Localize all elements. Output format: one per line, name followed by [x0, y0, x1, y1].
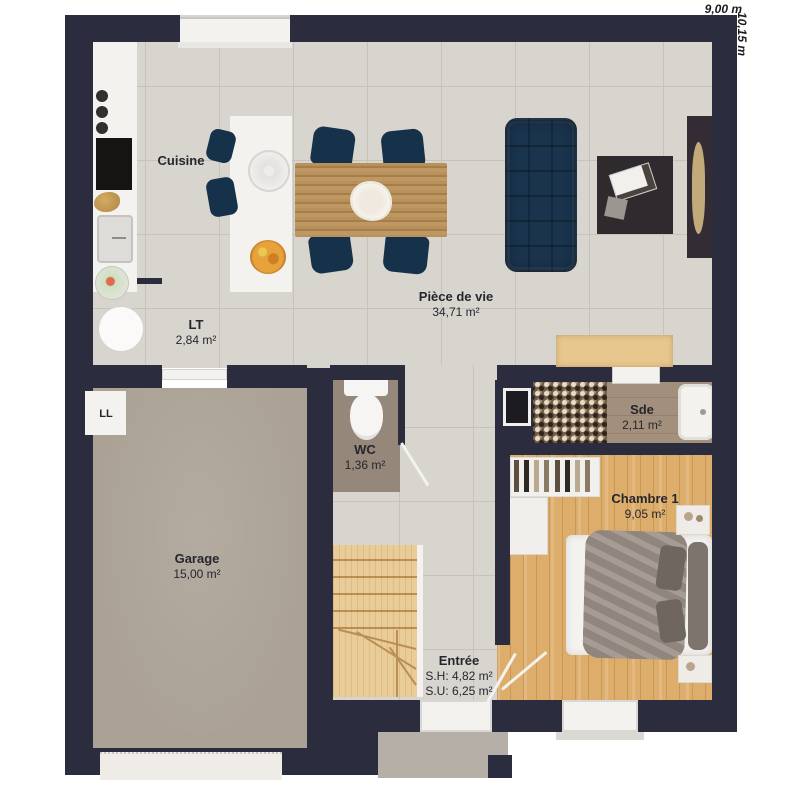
- room-name: Chambre 1: [611, 491, 678, 507]
- table-centerpiece-icon: [352, 183, 390, 219]
- room-label-chambre-1: Chambre 1 9,05 m²: [611, 491, 678, 522]
- porch-post: [488, 755, 512, 778]
- dining-chair: [382, 233, 430, 275]
- room-label-sde: Sde 2,11 m²: [622, 402, 662, 433]
- salad-bowl-icon: [95, 266, 129, 300]
- stair-edge: [417, 545, 423, 697]
- room-label-entree: Entrée S.H: 4,82 m² S.U: 6,25 m²: [425, 653, 492, 700]
- faucet-icon: [112, 237, 126, 239]
- room-area: 34,71 m²: [419, 305, 493, 321]
- wall-bottom-right: [333, 700, 737, 732]
- room-name: Pièce de vie: [419, 289, 493, 305]
- stair-newel-line: [396, 630, 398, 697]
- stove-knob-icon: [96, 106, 108, 118]
- room-area-su: S.U: 6,25 m²: [425, 684, 492, 700]
- garage-lt-door-leaf: [162, 369, 227, 380]
- sink-drain-icon: [700, 409, 706, 415]
- room-name: Cuisine: [158, 153, 205, 169]
- chambre-window: [562, 700, 638, 732]
- nightstand-decor-icon: [684, 512, 693, 521]
- nightstand-decor-icon: [696, 515, 703, 522]
- wall-wc-top: [330, 365, 405, 380]
- dimension-height: 10,15 m: [735, 12, 749, 66]
- room-name: WC: [345, 442, 386, 458]
- wall-garage-top-left: [93, 365, 162, 388]
- garage-door: [100, 752, 282, 780]
- room-label-wc: WC 1,36 m²: [345, 442, 386, 473]
- coaster-icon: [604, 196, 628, 220]
- nightstand: [676, 505, 710, 535]
- dimension-width: 9,00 m: [650, 2, 742, 16]
- kitchen-sink: [97, 215, 133, 263]
- wardrobe-clothes-icon: [514, 460, 596, 492]
- room-area: 1,36 m²: [345, 458, 386, 474]
- wall-garage-right: [307, 368, 333, 775]
- room-name: Entrée: [425, 653, 492, 669]
- room-area: 2,84 m²: [176, 333, 217, 349]
- sde-door: [612, 366, 660, 384]
- wall-sde-top-right: [660, 365, 712, 382]
- stove-knob-icon: [96, 122, 108, 134]
- dining-chair: [308, 231, 355, 274]
- kitchen-window-sill: [178, 42, 292, 48]
- room-name: LT: [176, 317, 217, 333]
- cooktop: [96, 138, 132, 190]
- washing-machine-text: LL: [99, 408, 112, 420]
- tv-icon: [692, 142, 705, 234]
- room-label-piece-de-vie: Pièce de vie 34,71 m²: [419, 289, 493, 320]
- wall-garage-top-right: [227, 365, 307, 388]
- room-name: Garage: [173, 551, 220, 567]
- wall-wc-right: [398, 368, 405, 445]
- wall-sde-chambre: [510, 443, 712, 455]
- wall-top: [65, 15, 737, 42]
- sofa: [505, 118, 577, 272]
- nightstand: [678, 655, 712, 683]
- sideboard: [556, 335, 673, 367]
- fruit-bowl-icon: [250, 240, 286, 274]
- chambre-window-sill: [556, 732, 644, 740]
- nightstand-decor-icon: [686, 662, 695, 671]
- room-area: 9,05 m²: [611, 507, 678, 523]
- hall-cabinet: [503, 388, 531, 426]
- room-label-garage: Garage 15,00 m²: [173, 551, 220, 582]
- wall-porch-corner: [333, 732, 378, 775]
- island-sink-icon: [248, 150, 290, 192]
- water-heater-icon: [99, 307, 143, 351]
- floor-plan: LL Cuisine Pièce de vie 34,71 m² LT 2,84…: [0, 0, 800, 800]
- stove-knob-icon: [96, 90, 108, 102]
- washing-machine-label: LL: [99, 405, 112, 423]
- room-name: Sde: [622, 402, 662, 418]
- room-label-cuisine: Cuisine: [158, 153, 205, 169]
- shower: [533, 380, 607, 450]
- room-area-sh: S.H: 4,82 m²: [425, 669, 492, 685]
- wall-sde-top-left: [533, 365, 612, 382]
- bathroom-sink: [678, 384, 714, 440]
- front-door: [420, 700, 492, 732]
- toilet-bowl-icon: [350, 394, 383, 440]
- room-area: 2,11 m²: [622, 418, 662, 434]
- room-label-lt: LT 2,84 m²: [176, 317, 217, 348]
- wall-right: [712, 42, 737, 732]
- pillow-icon: [688, 542, 708, 650]
- room-area: 15,00 m²: [173, 567, 220, 583]
